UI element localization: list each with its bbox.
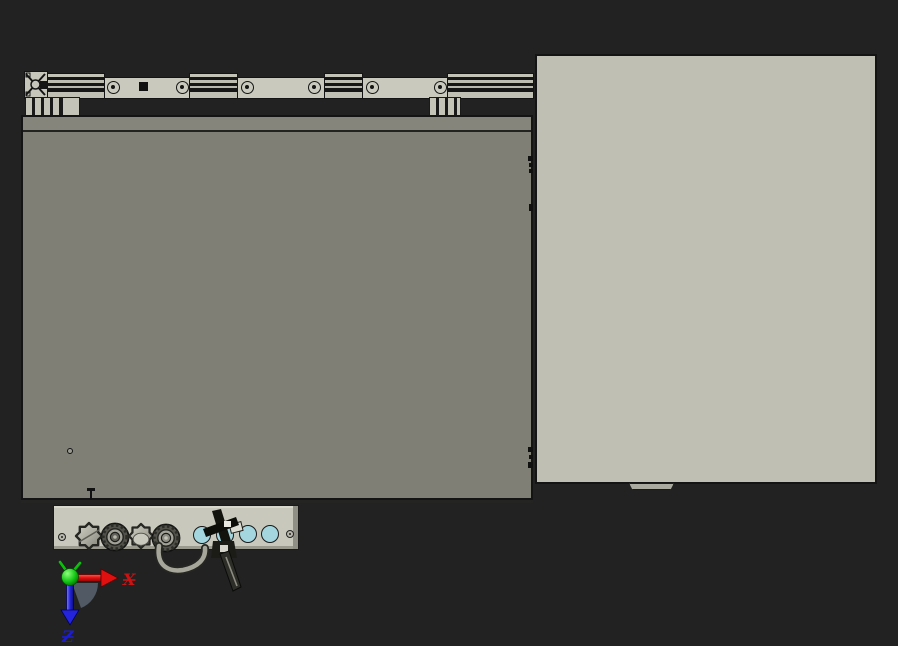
- z-axis-label: Z: [61, 627, 75, 646]
- edge-tick: [529, 163, 533, 167]
- edge-tick: [528, 156, 533, 161]
- cad-viewport[interactable]: X Z: [0, 0, 898, 646]
- knurled-knob-1[interactable]: [100, 522, 130, 552]
- x-axis-arrow: [71, 569, 118, 587]
- star-knob-1[interactable]: [75, 522, 103, 550]
- enclosure-face-screw: [67, 448, 73, 454]
- edge-tick: [529, 204, 533, 211]
- edge-tick: [529, 169, 533, 173]
- z-axis-arrow: [61, 584, 79, 625]
- t-pin-stem: [90, 491, 92, 500]
- rail-extrusion-segment: [189, 73, 238, 99]
- side-panel-bottom-tab: [629, 483, 674, 490]
- rail-screw: [366, 81, 379, 94]
- rail-screw: [308, 81, 321, 94]
- panel-screw-left: [58, 533, 66, 541]
- orientation-triad: X Z: [38, 554, 158, 646]
- triad-shadow: [72, 583, 98, 608]
- panel-hole-3: [239, 525, 257, 543]
- extrusion-endcap: [24, 71, 48, 99]
- rail-screw: [107, 81, 120, 94]
- panel-hole-4: [261, 525, 279, 543]
- panel-hole-2: [216, 526, 234, 544]
- edge-tick: [528, 462, 533, 468]
- triad-origin-ball: [62, 569, 79, 586]
- rail-extrusion-segment: [447, 73, 534, 99]
- edge-tick: [528, 447, 533, 452]
- side-cover-panel[interactable]: [535, 54, 877, 484]
- y-axis-stub: [60, 562, 80, 569]
- edge-tick: [529, 455, 533, 459]
- rail-sensor-dot: [139, 82, 148, 91]
- rail-extrusion-segment: [324, 73, 363, 99]
- panel-hole-1: [193, 526, 211, 544]
- rail-screw: [434, 81, 447, 94]
- main-enclosure[interactable]: [21, 115, 533, 500]
- panel-screw-right: [286, 530, 294, 538]
- rail-screw: [176, 81, 189, 94]
- rail-screw: [241, 81, 254, 94]
- enclosure-top-band: [23, 117, 531, 132]
- rail-extrusion-segment: [47, 73, 105, 99]
- knurled-knob-2[interactable]: [151, 523, 181, 553]
- x-axis-label: X: [122, 570, 136, 589]
